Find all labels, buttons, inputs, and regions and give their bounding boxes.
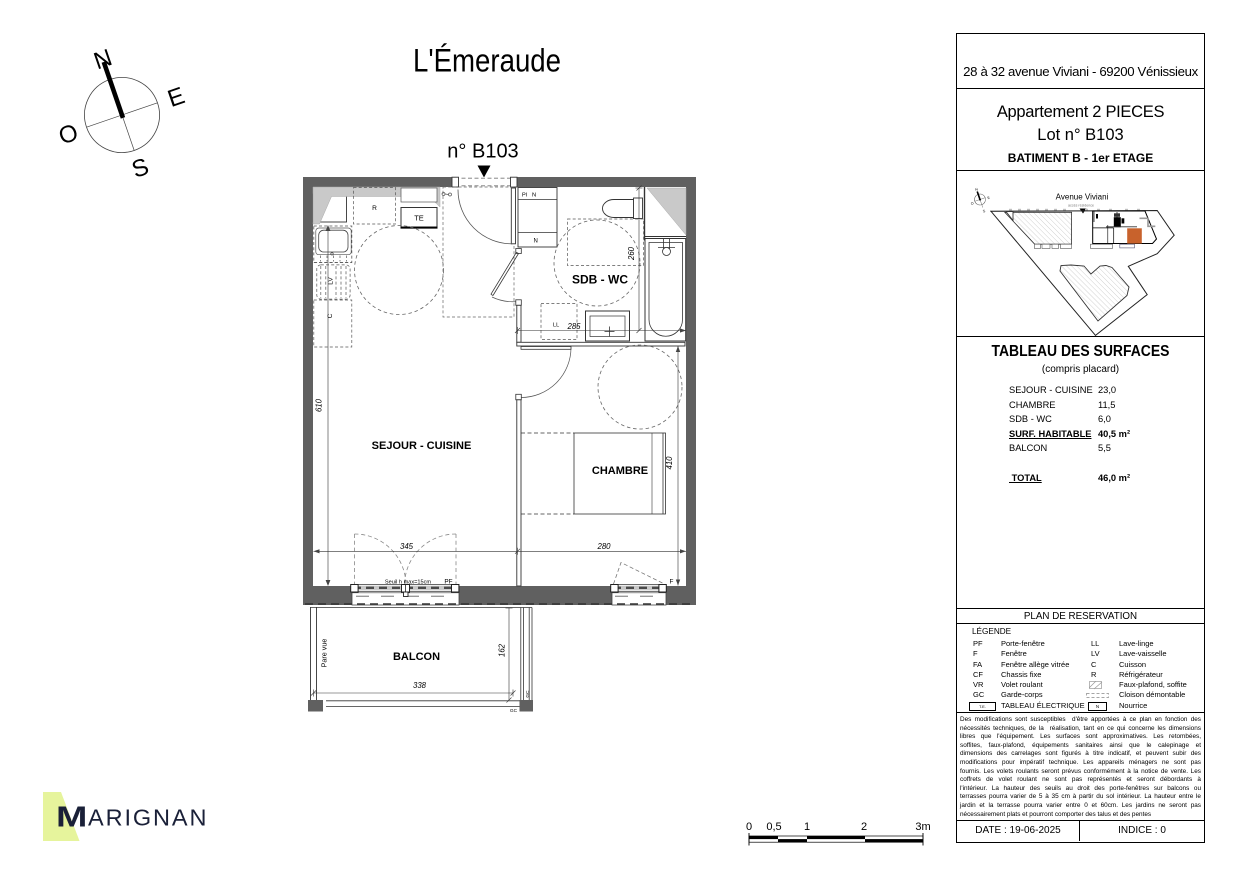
- svg-text:SDB - WC: SDB - WC: [572, 273, 628, 287]
- svg-text:GC: GC: [510, 708, 518, 714]
- svg-text:Avenue Viviani: Avenue Viviani: [1056, 193, 1109, 202]
- svg-text:S: S: [982, 209, 986, 214]
- svg-text:280: 280: [596, 542, 611, 551]
- svg-text:2: 2: [861, 821, 867, 833]
- svg-text:0,5: 0,5: [766, 821, 781, 833]
- svg-text:Pare vue: Pare vue: [320, 639, 329, 668]
- svg-text:ARIGNAN: ARIGNAN: [88, 805, 208, 831]
- svg-text:O: O: [970, 201, 974, 206]
- svg-text:162: 162: [498, 643, 507, 657]
- svg-text:PI: PI: [522, 193, 528, 199]
- svg-text:CHAMBRE: CHAMBRE: [592, 465, 648, 477]
- svg-text:LL: LL: [553, 323, 559, 329]
- svg-text:F: F: [670, 579, 674, 586]
- svg-text:accès résidence: accès résidence: [1068, 204, 1094, 208]
- svg-text:N: N: [90, 44, 115, 75]
- svg-text:TE: TE: [414, 214, 424, 223]
- svg-text:M: M: [56, 801, 87, 833]
- svg-text:SEJOUR - CUISINE: SEJOUR - CUISINE: [372, 440, 472, 452]
- svg-text:N: N: [532, 193, 536, 199]
- svg-text:GC: GC: [525, 690, 531, 698]
- svg-text:E: E: [987, 195, 991, 200]
- svg-text:n° B103: n° B103: [447, 141, 518, 163]
- svg-text:345: 345: [400, 542, 414, 551]
- svg-text:BALCON: BALCON: [393, 651, 440, 663]
- svg-text:0: 0: [746, 821, 752, 833]
- svg-text:R: R: [372, 205, 377, 212]
- svg-text:L'Émeraude: L'Émeraude: [413, 43, 561, 79]
- svg-text:E: E: [164, 82, 188, 113]
- svg-text:410: 410: [665, 456, 674, 470]
- svg-text:Seuil h max=15cm: Seuil h max=15cm: [385, 580, 432, 586]
- svg-text:N: N: [534, 239, 538, 245]
- svg-text:610: 610: [315, 398, 324, 412]
- svg-text:O: O: [55, 119, 81, 151]
- svg-text:285: 285: [566, 322, 581, 331]
- svg-text:3m: 3m: [915, 821, 930, 833]
- svg-text:PF: PF: [444, 579, 452, 586]
- svg-text:338: 338: [413, 681, 427, 690]
- svg-text:N: N: [975, 187, 979, 192]
- svg-text:1: 1: [804, 821, 810, 833]
- svg-text:LV: LV: [328, 277, 335, 285]
- svg-text:S: S: [128, 153, 152, 184]
- svg-text:260: 260: [627, 246, 636, 261]
